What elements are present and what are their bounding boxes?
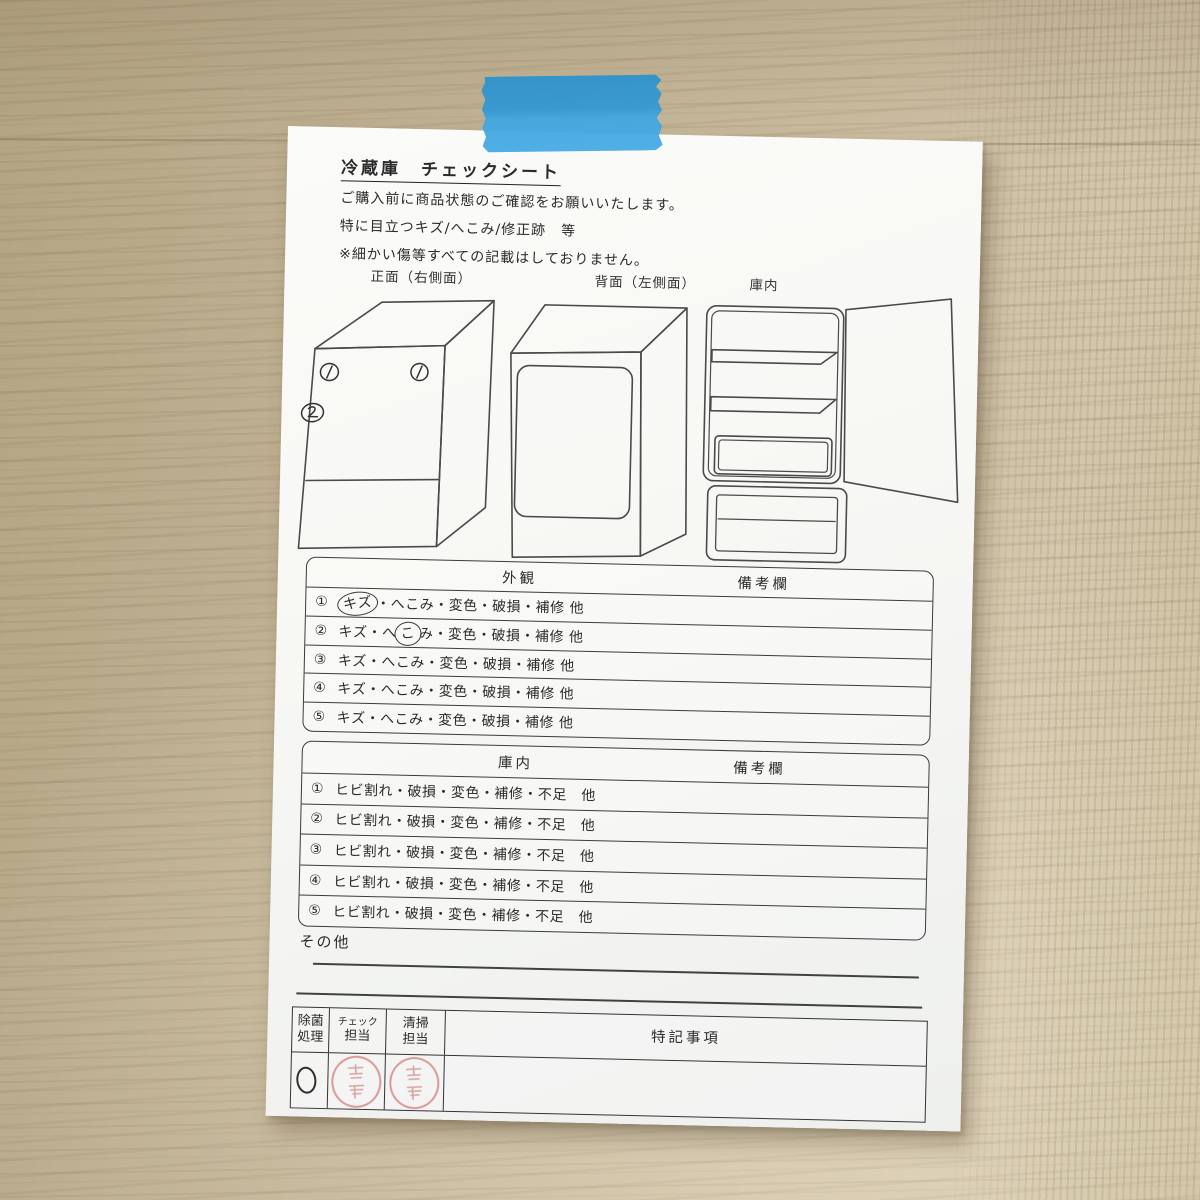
writing-line [296, 992, 922, 1008]
cleaning-name-stamp-icon [388, 1055, 440, 1109]
pen-mark-2 [410, 362, 430, 382]
column-header-remarks: 備考欄 [733, 756, 786, 778]
handwritten-circle-mark [295, 1066, 318, 1095]
interior-check-table: 庫内 備考欄 ① ヒビ割れ・破損・変色・補修・不足 他 ② ヒビ割れ・破損・変色… [298, 740, 930, 940]
fridge-interior-view [701, 294, 962, 566]
fridge-back-view [506, 304, 691, 561]
header-disinfection: 除菌 [297, 1013, 323, 1030]
wood-table-background: 冷蔵庫 チェックシート ご購入前に商品状態のご確認をお願いいたします。 特に目立… [0, 0, 1200, 1200]
intro-line: ご購入前に商品状態のご確認をお願いいたします。 [340, 187, 684, 215]
diagram-label-interior: 庫内 [749, 274, 778, 295]
column-header-exterior: 外観 [502, 566, 537, 588]
refrigerator-line-drawings [296, 282, 964, 569]
pen-circle-annotation: キズ [336, 590, 379, 618]
writing-line [313, 963, 919, 978]
exterior-check-table: 外観 備考欄 ① キズ・へこみ・変色・破損・補修 他 ② キズ・へこみ・変色・破… [302, 557, 934, 746]
special-notes-cell [444, 1056, 926, 1122]
staff-sign-off-table: 除菌 処理 チェック 担当 清掃 担当 特記事項 [290, 1006, 928, 1122]
refrigerator-check-sheet: 冷蔵庫 チェックシート ご購入前に商品状態のご確認をお願いいたします。 特に目立… [266, 126, 983, 1132]
pen-mark-3 [300, 401, 326, 424]
blue-masking-tape [481, 73, 663, 154]
page-title: 冷蔵庫 チェックシート [341, 153, 562, 186]
fridge-front-view [298, 296, 494, 552]
intro-line: 特に目立つキズ/へこみ/修正跡 等 [340, 215, 577, 240]
check-name-stamp-icon [330, 1054, 382, 1108]
column-header-interior: 庫内 [498, 751, 533, 773]
other-section-label: その他 [299, 930, 350, 952]
header-check: チェック [338, 1016, 378, 1029]
header-cleaning: 清掃 [402, 1016, 428, 1033]
pen-mark-1 [319, 362, 340, 382]
pen-circle-annotation: こ [393, 620, 422, 647]
column-header-remarks: 備考欄 [737, 571, 790, 593]
